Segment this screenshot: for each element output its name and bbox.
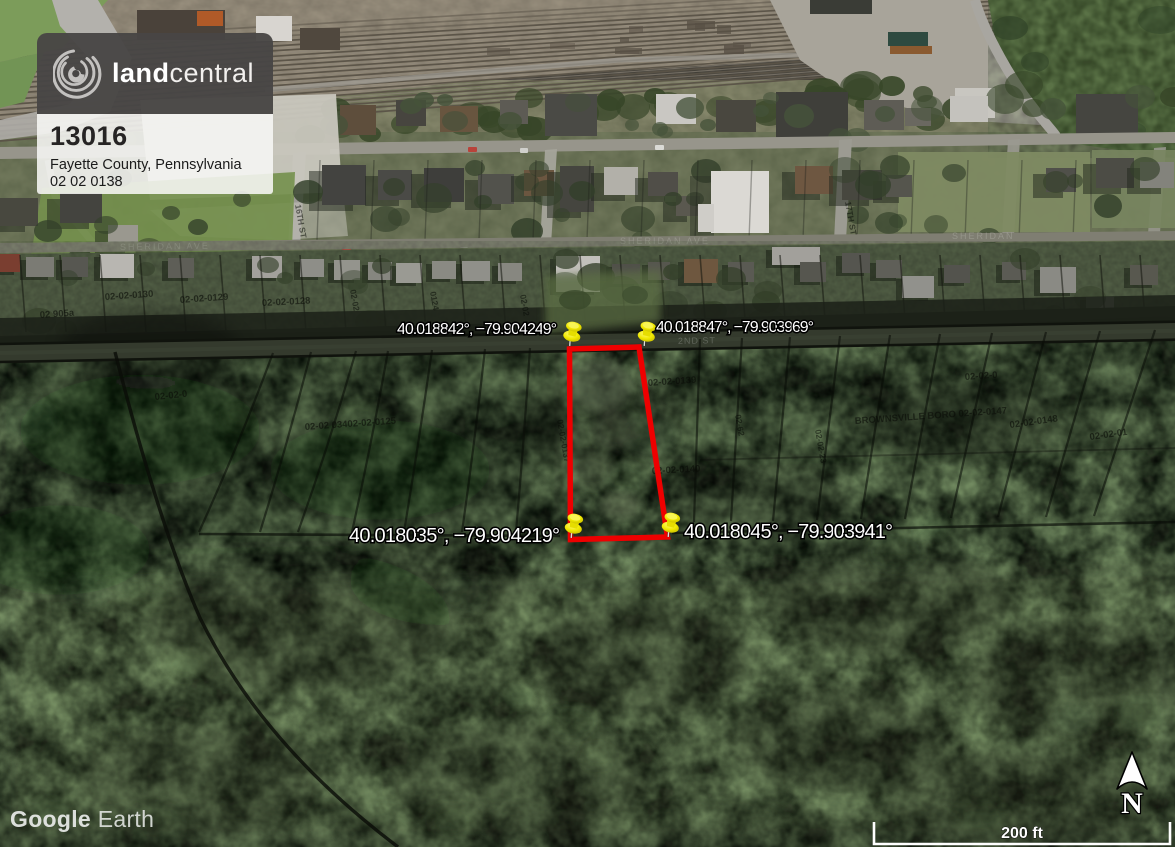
svg-text:02-02-0: 02-02-0 xyxy=(964,370,997,383)
svg-text:SHERIDAN AVE: SHERIDAN AVE xyxy=(120,241,210,252)
svg-text:40.018847°, −79.903969°: 40.018847°, −79.903969° xyxy=(656,319,814,336)
svg-text:N: N xyxy=(1121,787,1143,820)
svg-text:2ND ST: 2ND ST xyxy=(678,335,716,346)
svg-text:200 ft: 200 ft xyxy=(1001,825,1043,842)
svg-text:40.018045°, −79.903941°: 40.018045°, −79.903941° xyxy=(684,521,893,543)
svg-text:40.018842°, −79.904249°: 40.018842°, −79.904249° xyxy=(397,321,557,338)
svg-text:40.018035°, −79.904219°: 40.018035°, −79.904219° xyxy=(349,525,560,547)
svg-text:SHERIDAN: SHERIDAN xyxy=(952,231,1015,241)
svg-text:SHERIDAN AVE: SHERIDAN AVE xyxy=(620,236,710,246)
